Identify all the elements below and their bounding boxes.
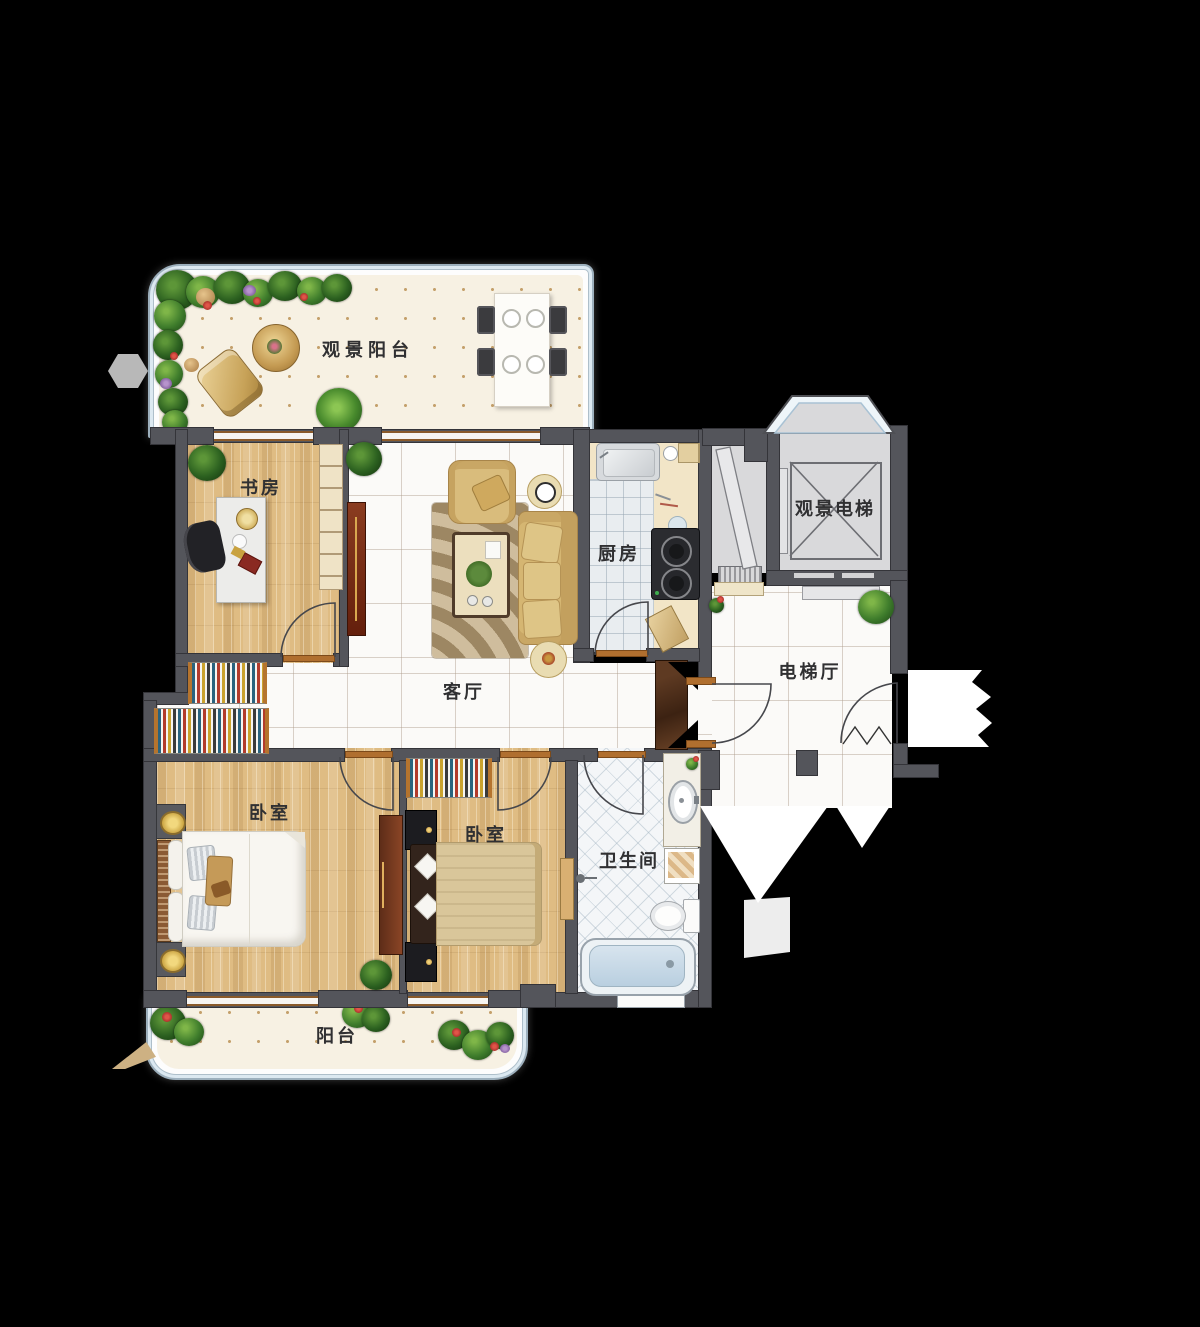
armchair-cushion (471, 474, 512, 513)
shower-arm (585, 877, 597, 879)
lamp (160, 949, 186, 973)
cut-wedge (700, 806, 828, 903)
round-tray (527, 474, 562, 509)
entry-door-lintel (686, 740, 716, 748)
dining-chair (549, 348, 567, 376)
plant-icon (153, 330, 183, 360)
sofa-cushion (522, 599, 563, 640)
sofa-cushion (523, 562, 561, 600)
duct-sill (714, 582, 764, 596)
bathtub-drain (666, 960, 674, 968)
room-label-elevator-hall: 电梯厅 (779, 658, 842, 684)
purple-flowers (160, 378, 172, 389)
dining-chair (477, 306, 495, 334)
door-threshold (596, 650, 648, 657)
nightstand (156, 942, 186, 977)
cut-strip (744, 897, 790, 958)
wall (766, 570, 908, 586)
table-paper (485, 541, 501, 559)
sofa-cushion (520, 521, 563, 564)
bathroom-window (617, 994, 685, 1008)
coffee-table (452, 532, 510, 618)
sofa (518, 511, 578, 645)
sink-drain (679, 798, 684, 803)
counter-boards (678, 443, 700, 463)
wall-shelf (560, 858, 574, 920)
room-label-view-elevator: 观景电梯 (795, 495, 875, 521)
dining-chair (477, 348, 495, 376)
plate (526, 309, 545, 328)
bookshelf (406, 758, 492, 798)
outdoor-dining-table (494, 293, 550, 407)
kitchen-sink (596, 443, 660, 481)
bookshelf (154, 708, 269, 754)
red-flowers (170, 352, 178, 360)
red-flowers (452, 1028, 461, 1037)
plate (502, 355, 521, 374)
wall (893, 764, 939, 778)
tv-cabinet-handle (355, 517, 357, 621)
tv-cabinet (347, 502, 366, 636)
red-flowers (203, 301, 212, 310)
room-label-balcony: 阳台 (316, 1022, 358, 1048)
palm-icon (316, 388, 362, 432)
wicker-table-flowers (267, 339, 282, 354)
plate (526, 355, 545, 374)
room-label-view-balcony: 观景阳台 (322, 336, 414, 362)
red-flowers (693, 756, 699, 762)
room-label-kitchen: 厨房 (598, 540, 640, 566)
wall (796, 750, 818, 776)
cabinet-knob (426, 827, 432, 833)
armchair (448, 460, 516, 524)
wall (766, 428, 780, 582)
round-tray (530, 641, 567, 678)
room-label-bedroom-left: 卧室 (249, 799, 291, 825)
elevator-door-mark (794, 573, 834, 578)
purple-flowers (500, 1044, 510, 1053)
window (382, 431, 540, 441)
plant-icon (154, 300, 186, 332)
table-cup (467, 595, 478, 606)
plant-icon (858, 590, 894, 624)
red-flowers (253, 297, 261, 305)
wall-pier (143, 990, 187, 1008)
elevator-door-mark (842, 573, 874, 578)
wall (890, 425, 908, 582)
bookshelf (188, 662, 267, 704)
wall (698, 750, 720, 790)
room-label-bathroom: 卫生间 (599, 847, 659, 873)
burner (661, 536, 692, 567)
desk-lamp (236, 508, 258, 530)
door-threshold (345, 751, 393, 758)
window (214, 431, 313, 441)
tray-inner (535, 482, 556, 503)
tray-fruit (542, 652, 555, 665)
bay-window-inner (775, 403, 885, 433)
plant-icon (322, 274, 352, 302)
plant-icon (362, 1006, 390, 1032)
duvet-fold (249, 834, 250, 944)
table-plant (466, 561, 492, 587)
cabinet (405, 942, 437, 982)
stove-led (655, 591, 659, 595)
table-cup (482, 596, 493, 607)
cut-wedge (836, 806, 890, 848)
red-flowers (490, 1042, 499, 1051)
sink-basin (603, 449, 655, 477)
wall (698, 429, 712, 682)
bed-headboard (410, 844, 438, 944)
entry-door-lintel (686, 677, 716, 685)
palm-icon (360, 960, 392, 990)
wall-pier (520, 984, 556, 1008)
red-flowers (162, 1012, 172, 1022)
duct-shaft (712, 443, 768, 573)
shower-valve (576, 874, 585, 883)
bathtub (580, 938, 696, 996)
room-label-study: 书房 (240, 474, 282, 500)
towels (668, 852, 694, 878)
floor-plan-canvas: 观景阳台 书房 厨房 观景电梯 客厅 电梯厅 卧室 卧室 卫生间 阳台 (0, 0, 1200, 1327)
stove (651, 528, 700, 600)
duct-grille (718, 566, 762, 583)
red-flowers (300, 293, 308, 301)
faucet-icon (694, 796, 699, 804)
plant-icon (188, 445, 226, 481)
burner (661, 568, 692, 599)
palm-icon (346, 442, 382, 476)
wall-pier (318, 990, 408, 1008)
plate (502, 309, 521, 328)
door-threshold (500, 751, 551, 758)
red-flowers (717, 596, 724, 603)
cabinet-knob (426, 959, 432, 965)
purple-flowers (243, 285, 256, 296)
plant-icon (174, 1018, 204, 1046)
study-shelf (319, 444, 343, 590)
door-threshold (598, 751, 646, 758)
hexagon-marker (108, 354, 148, 388)
basket (184, 358, 199, 372)
wall (890, 580, 908, 674)
duvet-corner (285, 832, 305, 848)
counter-circle (663, 446, 678, 461)
door-threshold (283, 655, 335, 662)
wall (573, 648, 594, 662)
window (408, 996, 488, 1006)
wardrobe-handle (382, 862, 384, 908)
stair-break-shape (908, 670, 992, 747)
wall (744, 428, 768, 462)
wardrobe (379, 815, 403, 955)
bed-mattress (436, 842, 542, 946)
bay-window-outer (764, 396, 894, 433)
toilet-bowl (650, 901, 686, 931)
towel-shelf (664, 848, 700, 884)
room-label-bedroom-right: 卧室 (465, 821, 507, 847)
room-label-living-room: 客厅 (443, 678, 485, 704)
window (187, 996, 318, 1006)
dining-chair (549, 306, 567, 334)
